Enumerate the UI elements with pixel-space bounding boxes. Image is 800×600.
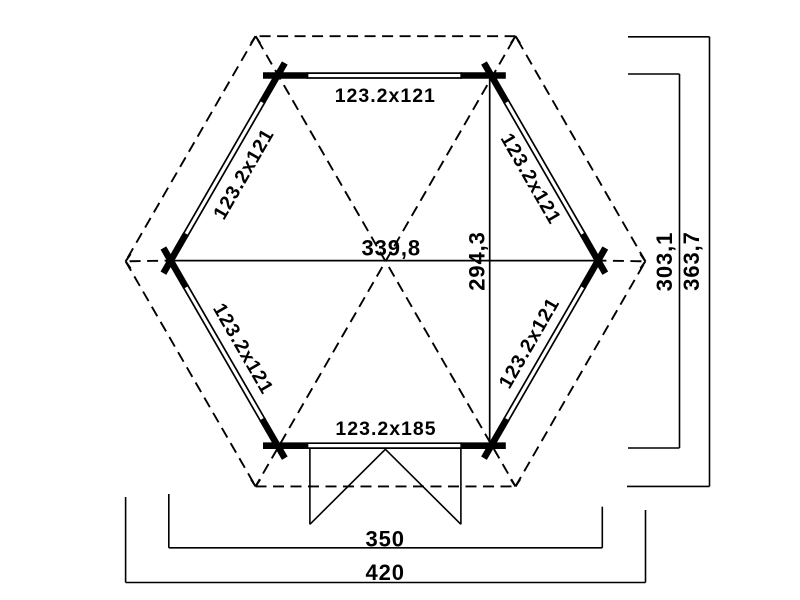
svg-text:339,8: 339,8 (362, 236, 422, 261)
svg-text:123.2x121: 123.2x121 (335, 85, 436, 107)
svg-text:350: 350 (365, 526, 404, 551)
svg-text:294,3: 294,3 (464, 231, 489, 291)
svg-text:420: 420 (365, 560, 404, 585)
svg-text:363,7: 363,7 (679, 231, 704, 291)
svg-text:123.2x185: 123.2x185 (335, 418, 436, 440)
svg-text:303,1: 303,1 (652, 232, 677, 292)
